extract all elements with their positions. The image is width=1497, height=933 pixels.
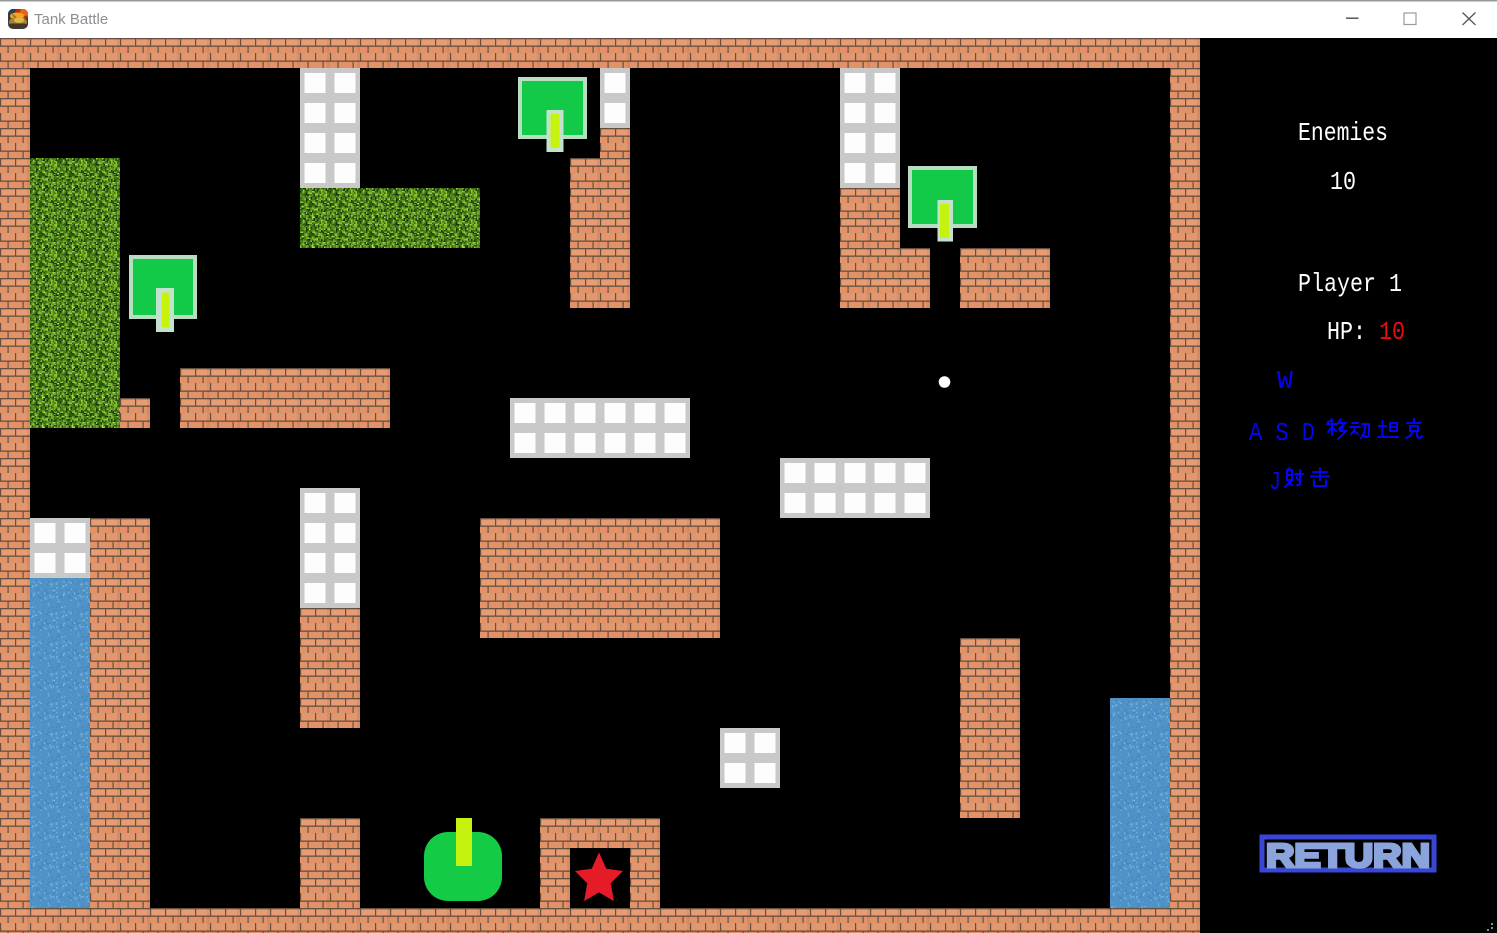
- svg-text:Player 1: Player 1: [1298, 269, 1402, 299]
- svg-text:RETURN: RETURN: [1266, 837, 1430, 874]
- svg-text:Enemies: Enemies: [1298, 118, 1388, 148]
- svg-text:10: 10: [1330, 167, 1356, 197]
- svg-text:10: 10: [1379, 317, 1405, 347]
- svg-text:HP:: HP:: [1327, 317, 1366, 347]
- svg-text:Tank Battle: Tank Battle: [34, 11, 108, 28]
- svg-text:A S D: A S D: [1249, 418, 1315, 448]
- svg-text:W: W: [1277, 366, 1293, 396]
- svg-text:J: J: [1269, 467, 1281, 497]
